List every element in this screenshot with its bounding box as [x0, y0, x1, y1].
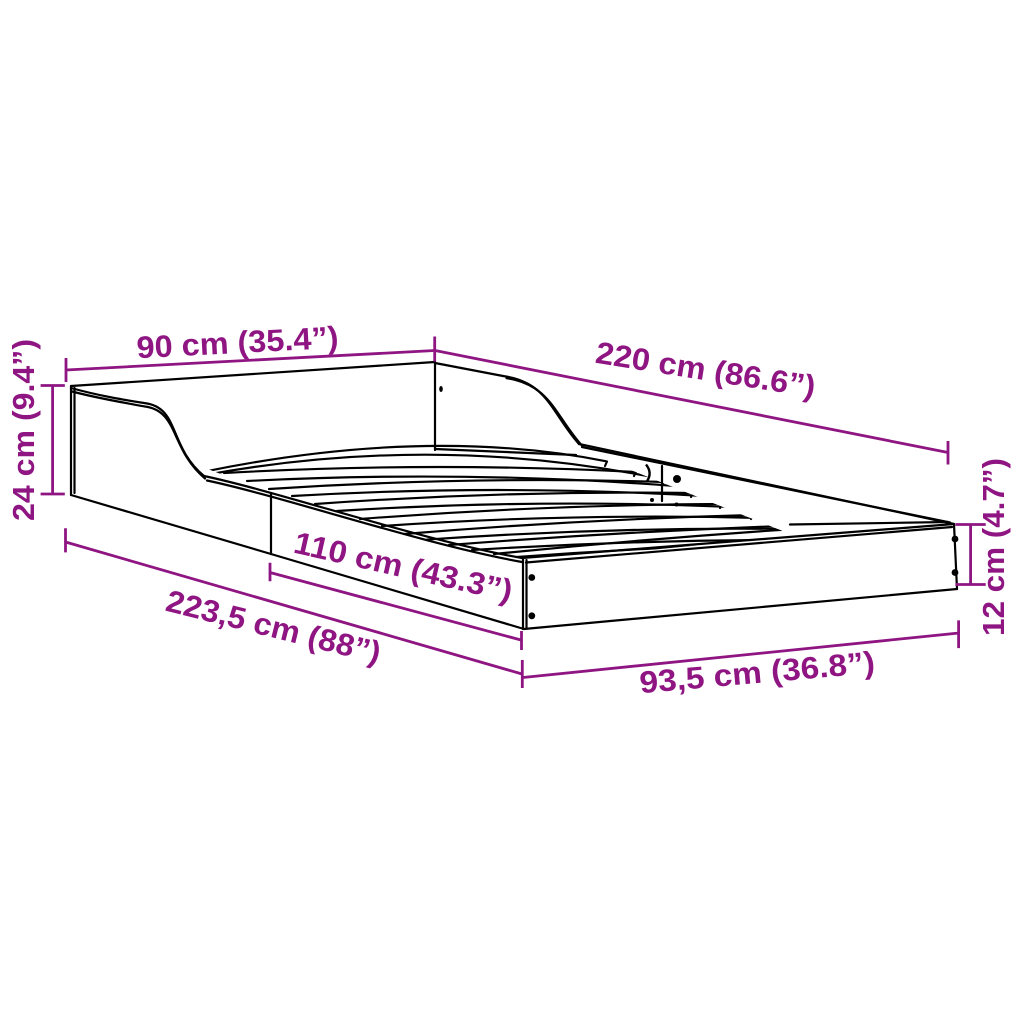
svg-text:24 cm (9.4”): 24 cm (9.4”) — [6, 339, 41, 521]
svg-text:12 cm (4.7”): 12 cm (4.7”) — [976, 458, 1011, 636]
